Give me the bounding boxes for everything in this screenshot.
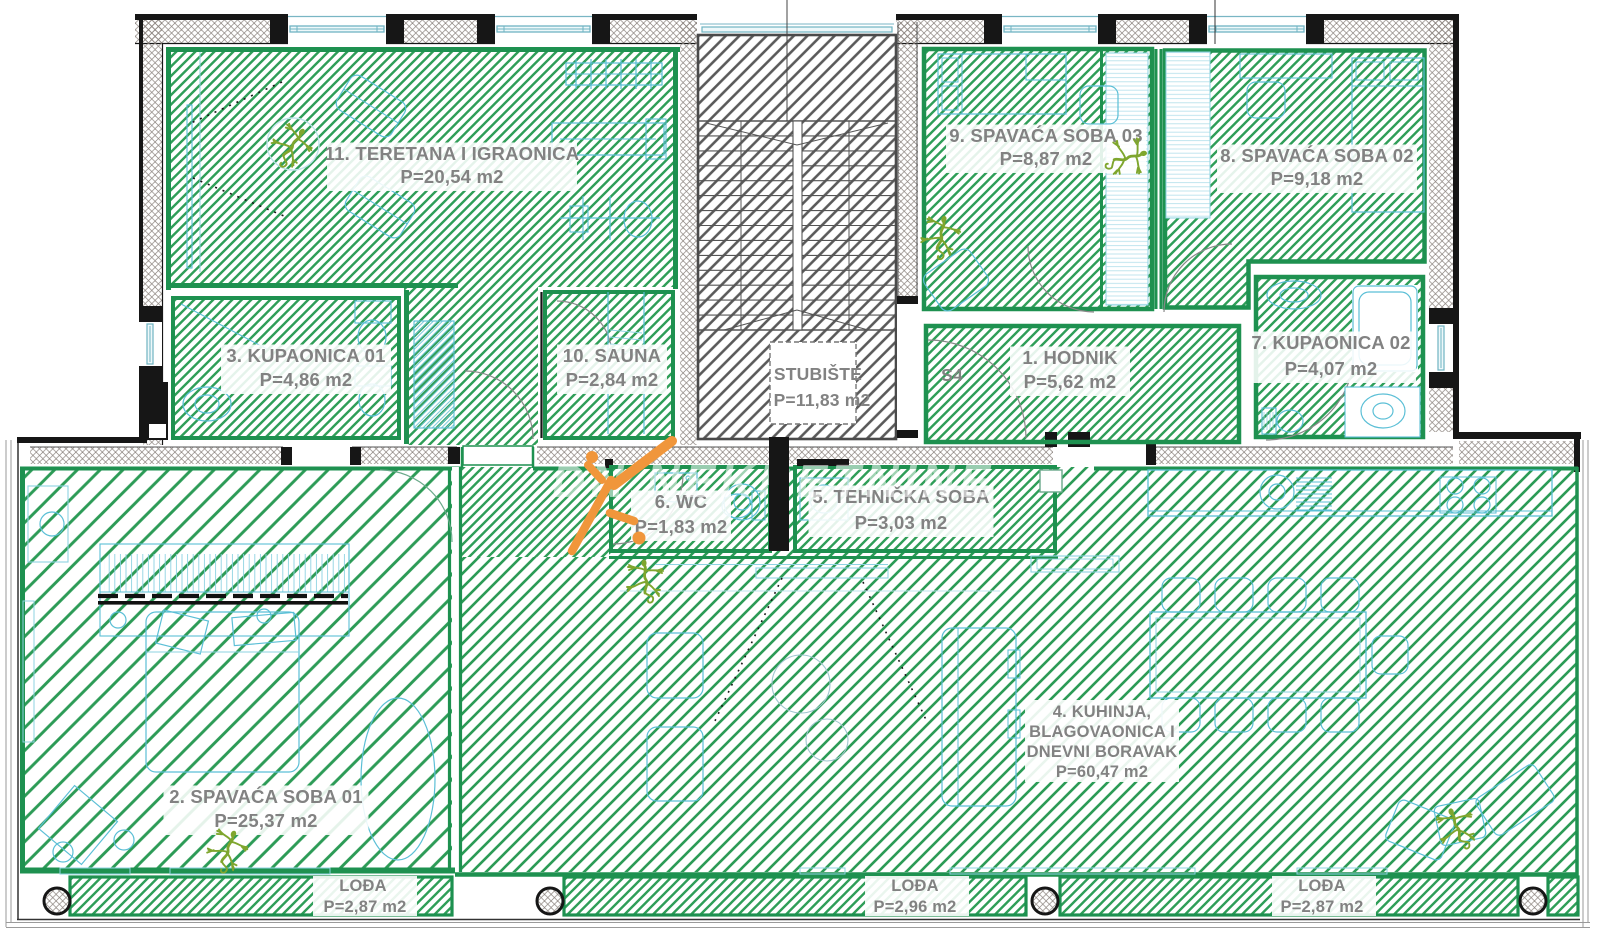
svg-text:P=20,54 m2: P=20,54 m2: [400, 166, 503, 187]
svg-text:P=60,47 m2: P=60,47 m2: [1056, 763, 1148, 781]
svg-text:LOĐA: LOĐA: [339, 877, 387, 895]
svg-text:P=3,03 m2: P=3,03 m2: [855, 512, 948, 533]
svg-text:LOĐA: LOĐA: [1298, 877, 1346, 895]
svg-text:1. HODNIK: 1. HODNIK: [1022, 347, 1118, 368]
svg-text:P=2,84 m2: P=2,84 m2: [566, 369, 659, 390]
svg-text:P=2,87 m2: P=2,87 m2: [1281, 898, 1364, 916]
svg-text:P=4,07 m2: P=4,07 m2: [1285, 358, 1378, 379]
svg-text:10. SAUNA: 10. SAUNA: [563, 345, 661, 366]
svg-text:3. KUPAONICA 01: 3. KUPAONICA 01: [226, 345, 385, 366]
svg-text:LOĐA: LOĐA: [891, 877, 939, 895]
svg-text:P=25,37 m2: P=25,37 m2: [214, 810, 317, 831]
svg-text:P=2,87 m2: P=2,87 m2: [324, 898, 407, 916]
svg-text:8. SPAVAĆA SOBA 02: 8. SPAVAĆA SOBA 02: [1220, 145, 1413, 166]
svg-text:BLAGOVAONICA I: BLAGOVAONICA I: [1029, 723, 1175, 741]
svg-text:STUBIŠTE: STUBIŠTE: [774, 363, 862, 384]
svg-text:DNEVNI BORAVAK: DNEVNI BORAVAK: [1027, 743, 1178, 761]
svg-text:P=2,96 m2: P=2,96 m2: [874, 898, 957, 916]
svg-text:S4: S4: [941, 365, 963, 385]
svg-text:P=8,87 m2: P=8,87 m2: [1000, 148, 1093, 169]
svg-text:P=1,83 m2: P=1,83 m2: [635, 516, 728, 537]
svg-text:7. KUPAONICA 02: 7. KUPAONICA 02: [1251, 332, 1410, 353]
svg-text:P=4,86 m2: P=4,86 m2: [260, 369, 353, 390]
svg-text:2. SPAVAĆA SOBA 01: 2. SPAVAĆA SOBA 01: [169, 786, 362, 807]
svg-text:11. TERETANA I IGRAONICA: 11. TERETANA I IGRAONICA: [325, 143, 580, 164]
svg-text:4. KUHINJA,: 4. KUHINJA,: [1053, 703, 1151, 721]
svg-text:P=5,62 m2: P=5,62 m2: [1024, 371, 1117, 392]
svg-text:P=11,83 m2: P=11,83 m2: [774, 390, 871, 410]
svg-text:P=9,18 m2: P=9,18 m2: [1271, 168, 1364, 189]
